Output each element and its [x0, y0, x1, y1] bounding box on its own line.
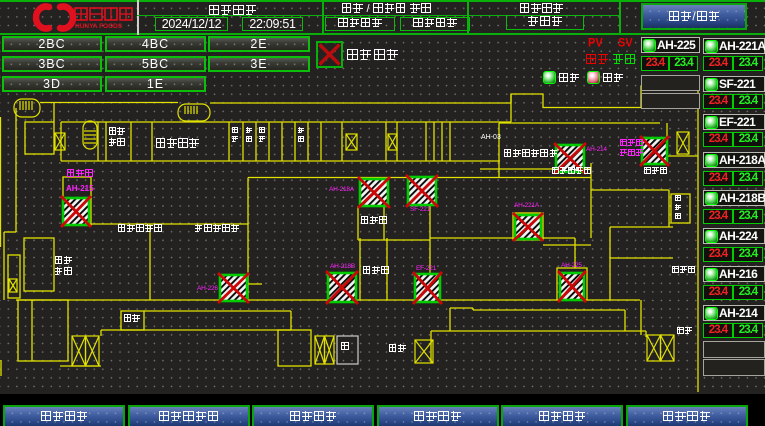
svg-text:HUNYA FOODS: HUNYA FOODS — [75, 23, 123, 30]
